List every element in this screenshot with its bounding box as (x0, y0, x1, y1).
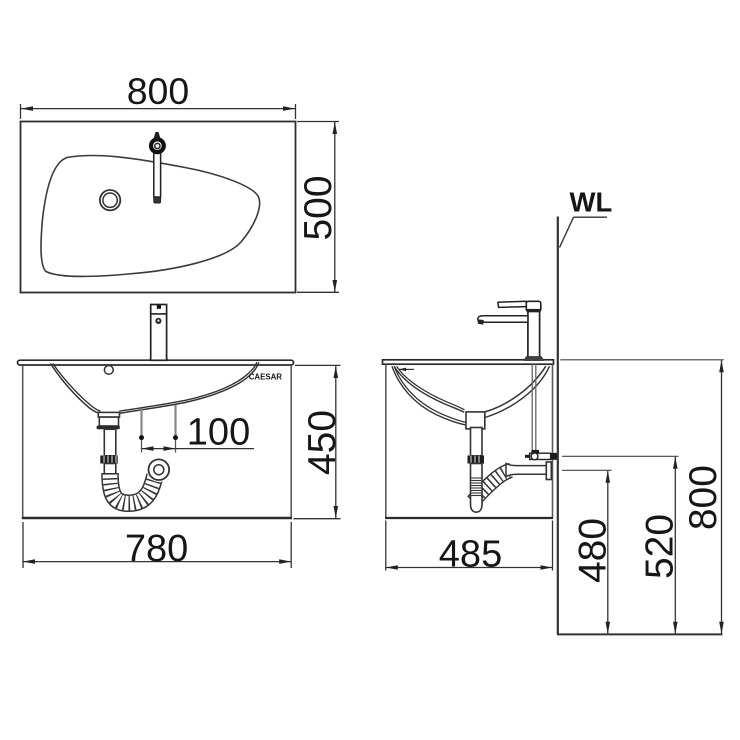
svg-text:520: 520 (638, 514, 681, 579)
svg-text:800: 800 (127, 70, 190, 112)
svg-text:450: 450 (301, 410, 344, 475)
svg-text:500: 500 (297, 175, 340, 240)
svg-text:480: 480 (572, 518, 615, 583)
svg-text:CAESAR: CAESAR (249, 372, 283, 381)
svg-text:485: 485 (439, 533, 502, 575)
svg-text:100: 100 (187, 411, 250, 453)
svg-text:WL: WL (570, 187, 613, 218)
svg-text:800: 800 (682, 465, 725, 530)
svg-text:780: 780 (125, 528, 188, 570)
